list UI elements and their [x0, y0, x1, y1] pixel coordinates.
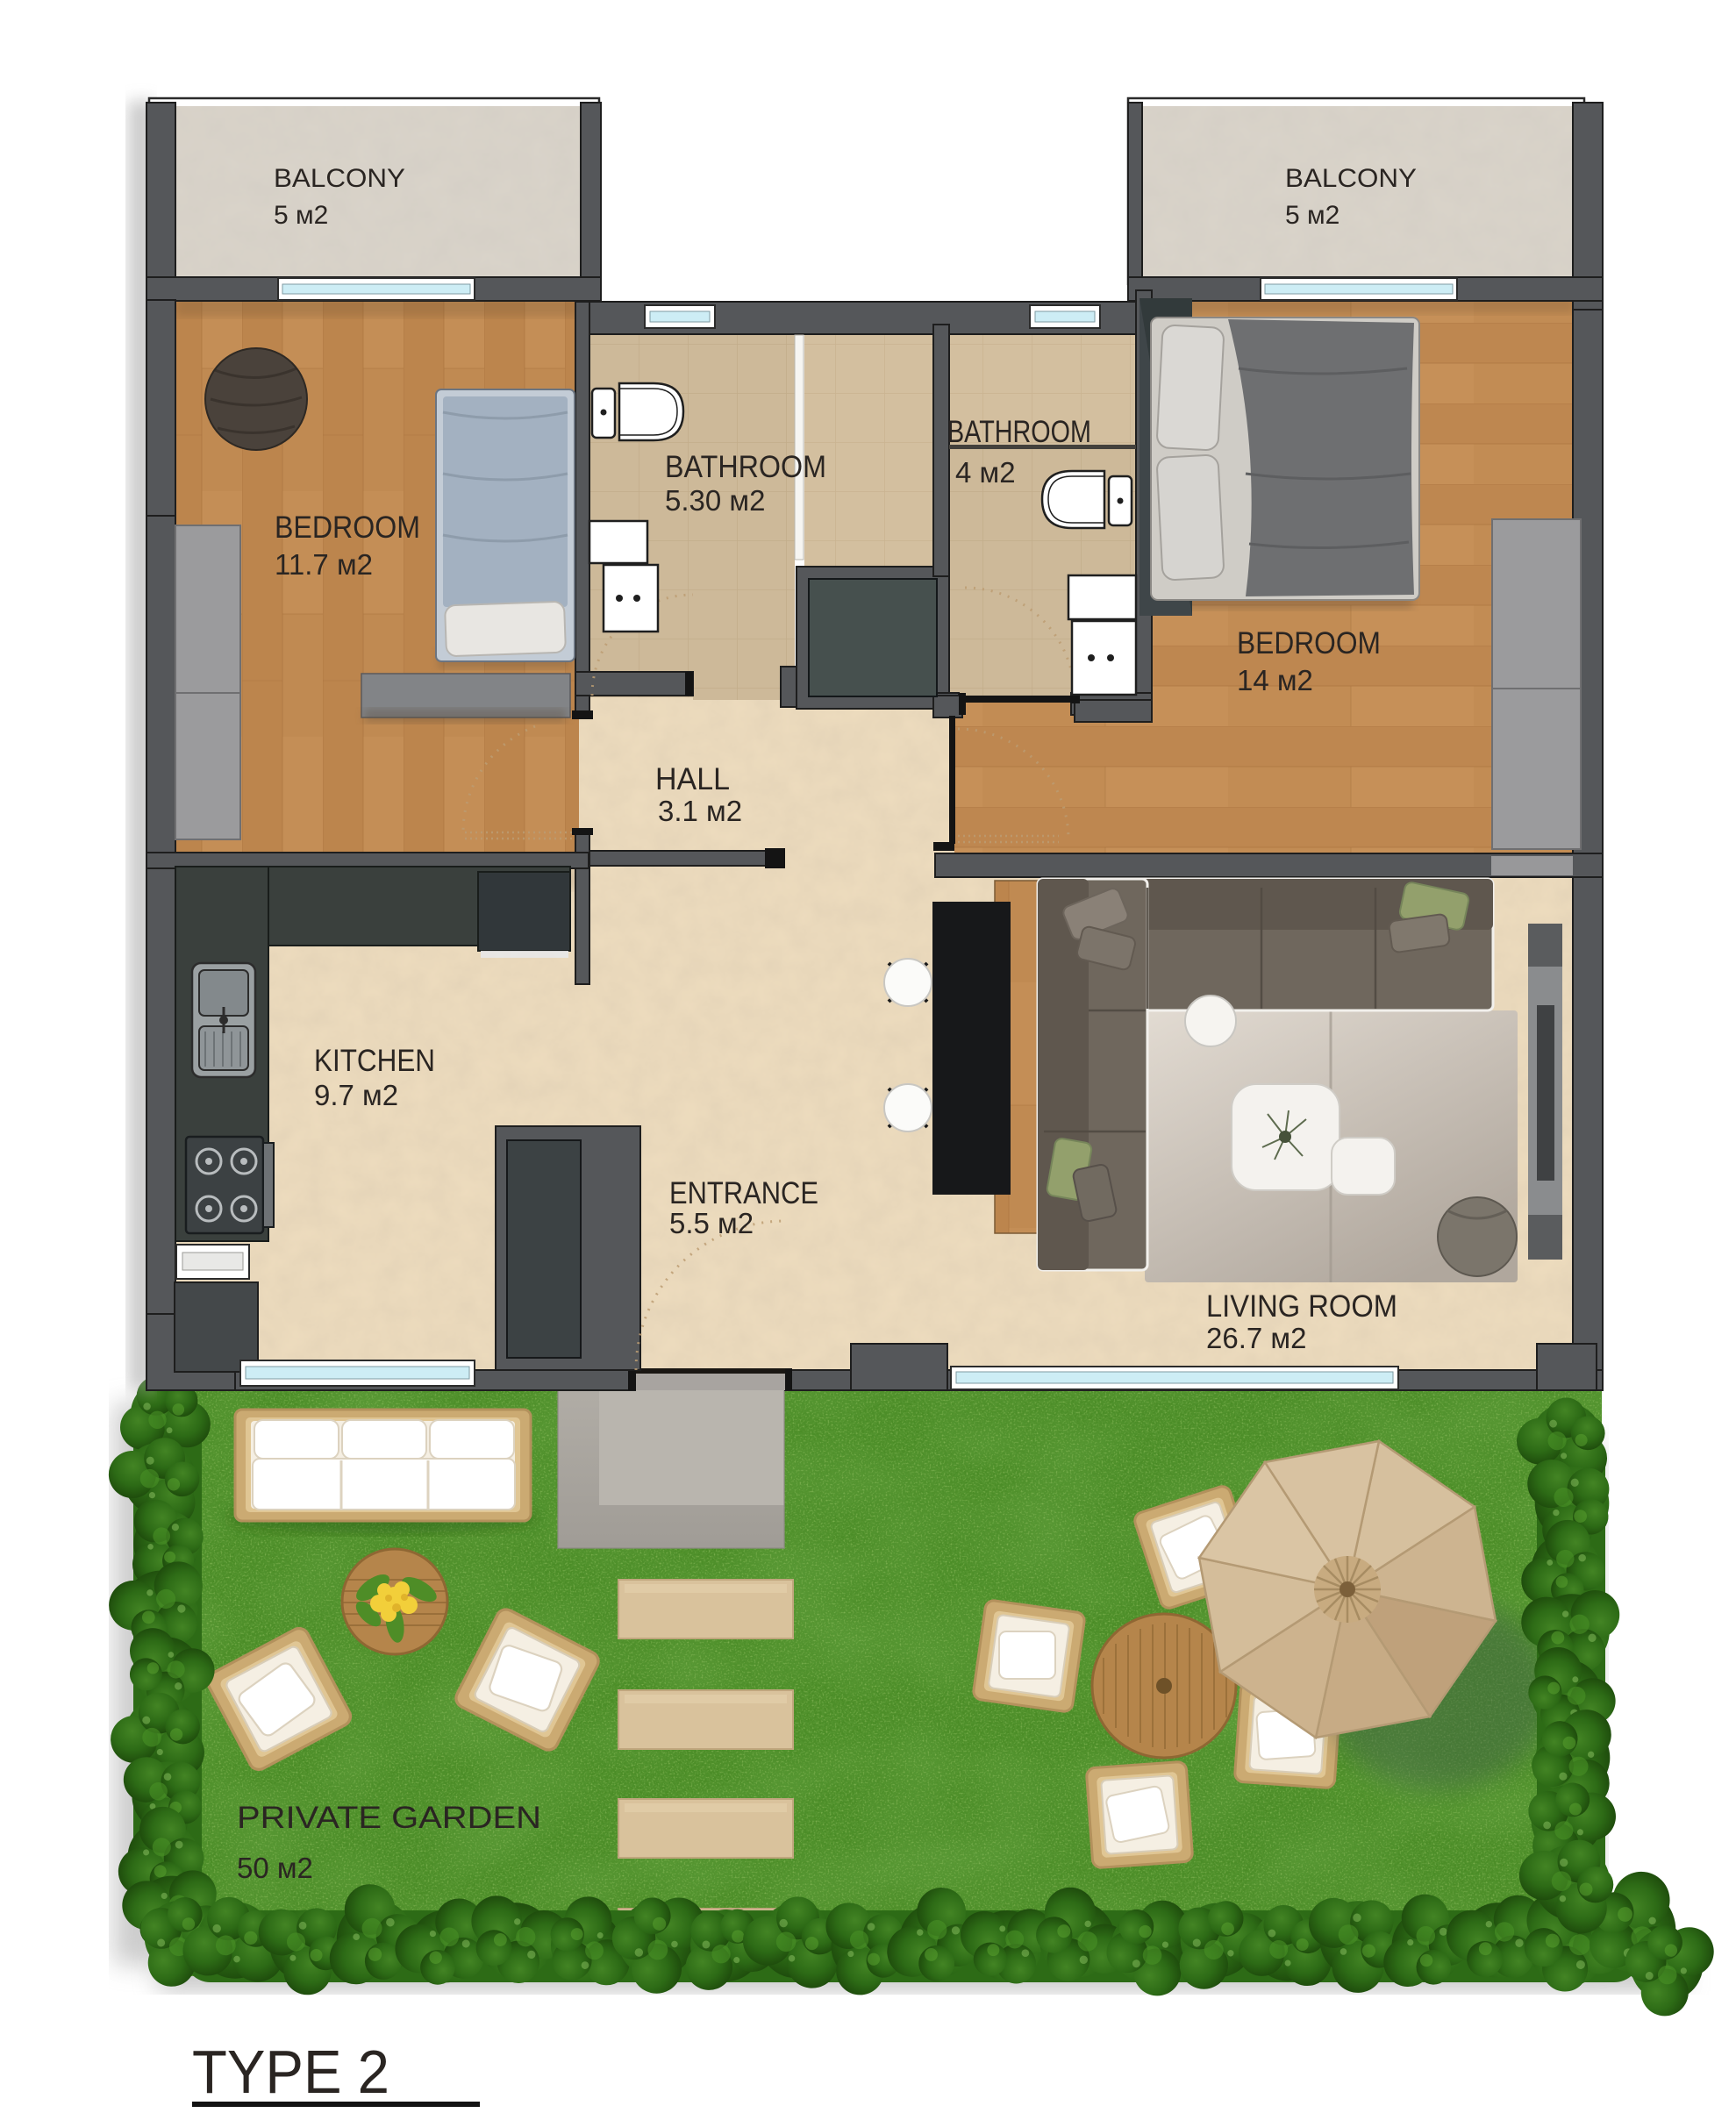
- svg-text:3.1 м2: 3.1 м2: [658, 795, 742, 827]
- svg-text:BEDROOM: BEDROOM: [1237, 626, 1381, 660]
- svg-text:50 м2: 50 м2: [237, 1852, 313, 1884]
- svg-text:11.7 м2: 11.7 м2: [275, 548, 373, 581]
- svg-text:HALL: HALL: [655, 762, 730, 796]
- svg-text:BALCONY: BALCONY: [274, 164, 405, 193]
- svg-text:ENTRANCE: ENTRANCE: [669, 1176, 818, 1210]
- svg-text:BATHROOM: BATHROOM: [947, 415, 1091, 449]
- svg-text:5 м2: 5 м2: [274, 201, 328, 230]
- svg-text:TYPE 2: TYPE 2: [192, 2038, 389, 2106]
- svg-text:9.7 м2: 9.7 м2: [314, 1079, 398, 1111]
- svg-text:5.5 м2: 5.5 м2: [669, 1207, 754, 1239]
- svg-text:26.7 м2: 26.7 м2: [1206, 1322, 1306, 1354]
- svg-text:PRIVATE GARDEN: PRIVATE GARDEN: [237, 1801, 541, 1835]
- svg-text:14 м2: 14 м2: [1237, 664, 1313, 696]
- svg-text:KITCHEN: KITCHEN: [314, 1044, 435, 1078]
- svg-text:BATHROOM: BATHROOM: [665, 450, 826, 484]
- svg-text:4 м2: 4 м2: [955, 456, 1016, 489]
- svg-text:5.30 м2: 5.30 м2: [665, 484, 765, 517]
- svg-text:BALCONY: BALCONY: [1285, 164, 1417, 193]
- svg-text:LIVING ROOM: LIVING ROOM: [1206, 1289, 1397, 1324]
- svg-text:5 м2: 5 м2: [1285, 201, 1340, 230]
- svg-text:BEDROOM: BEDROOM: [275, 510, 420, 545]
